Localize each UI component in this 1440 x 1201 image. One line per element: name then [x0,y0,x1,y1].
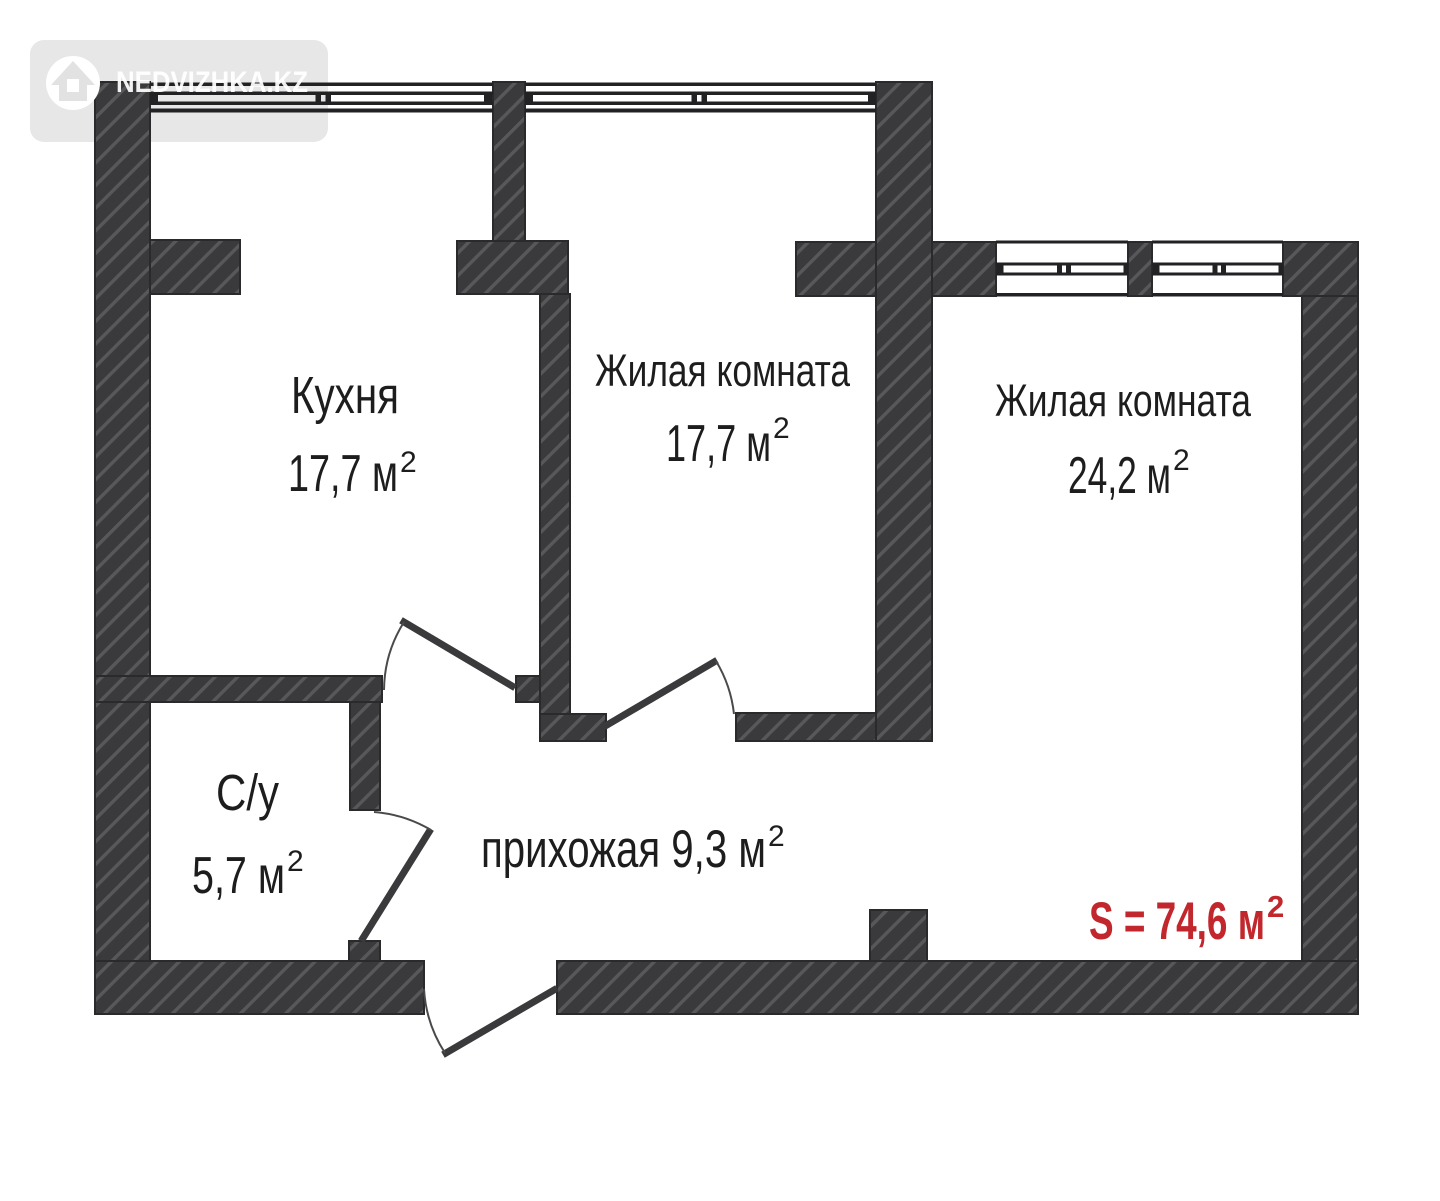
svg-text:прихожая 9,3 м: прихожая 9,3 м [481,820,766,879]
svg-text:NEDVIZHKA.KZ: NEDVIZHKA.KZ [116,66,308,99]
svg-text:2: 2 [773,412,790,445]
svg-text:Жилая комната: Жилая комната [995,375,1252,426]
svg-text:17,7 м: 17,7 м [288,445,398,503]
svg-text:24,2 м: 24,2 м [1068,447,1171,505]
svg-text:S = 74,6 м: S = 74,6 м [1089,892,1265,951]
svg-text:2: 2 [1173,444,1190,477]
svg-text:5,7 м: 5,7 м [192,847,285,905]
svg-text:2: 2 [400,446,417,479]
svg-text:2: 2 [768,820,785,853]
svg-text:17,7 м: 17,7 м [666,415,771,473]
svg-text:С/у: С/у [216,764,279,821]
svg-text:2: 2 [287,845,304,878]
svg-text:2: 2 [1267,889,1284,924]
svg-text:Кухня: Кухня [291,367,399,425]
svg-text:Жилая комната: Жилая комната [595,345,851,396]
